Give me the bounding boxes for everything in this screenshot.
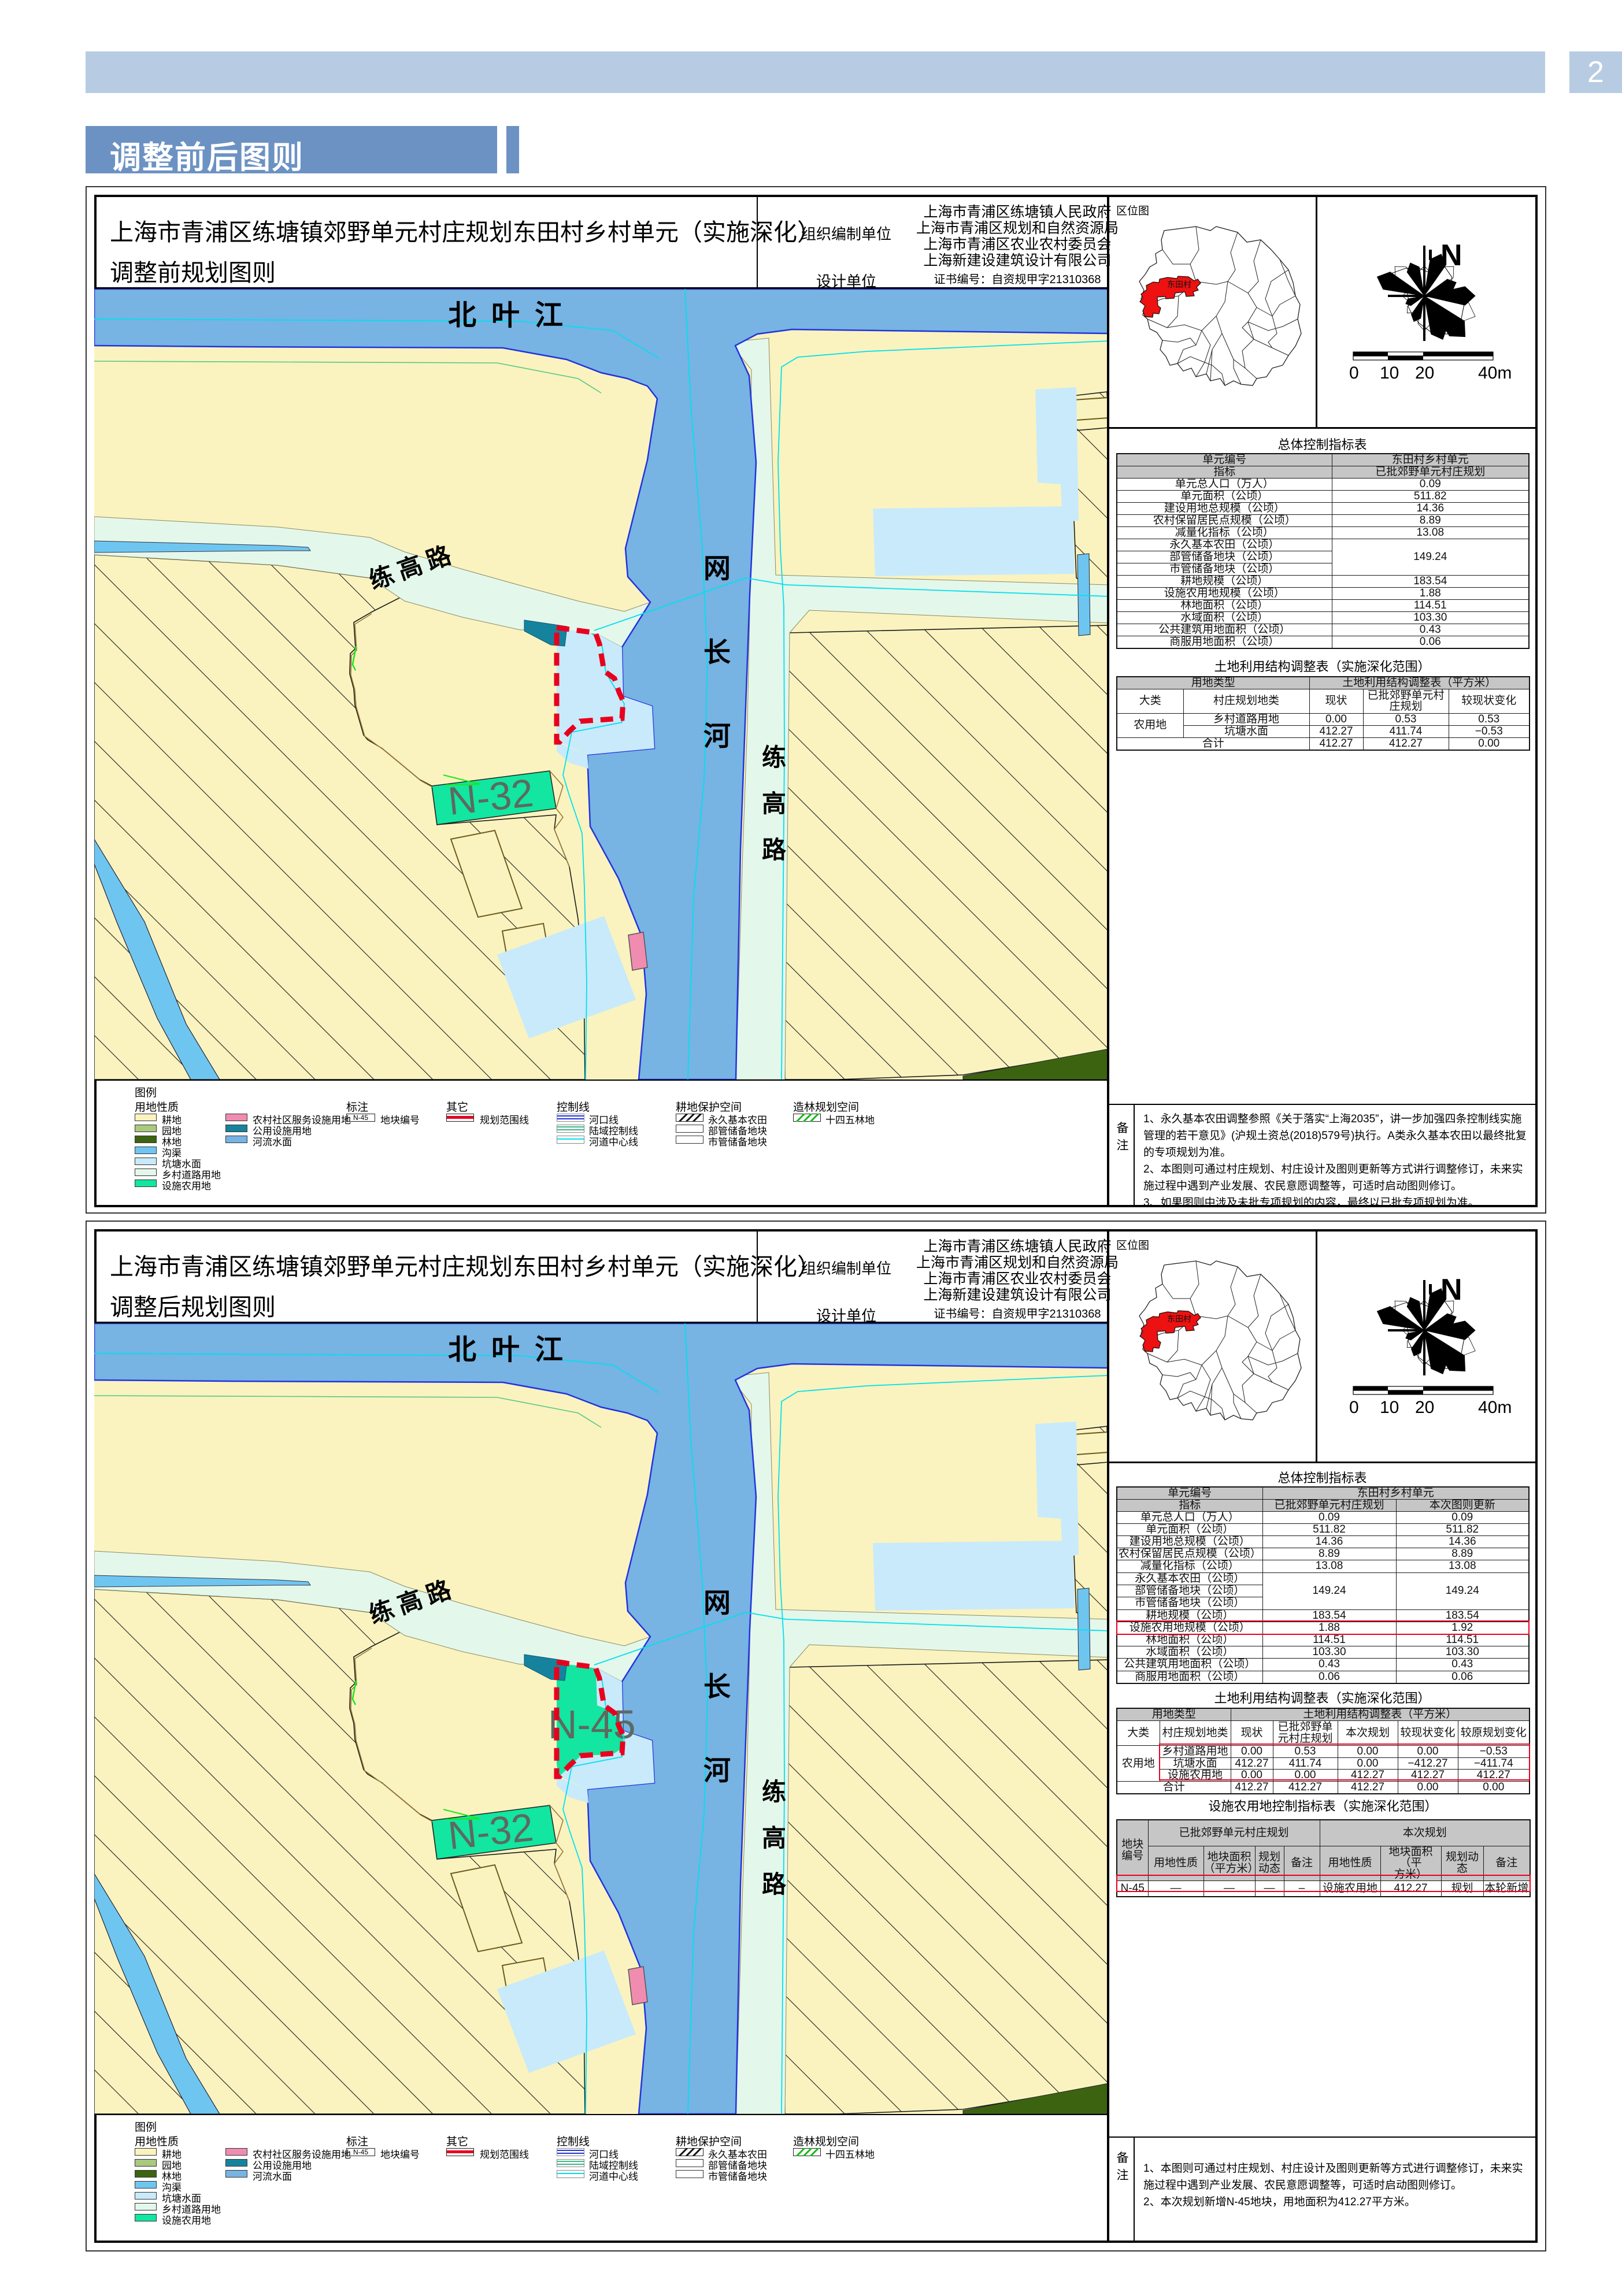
svg-text:北叶江: 北叶江: [448, 1334, 578, 1366]
svg-text:0: 0: [1349, 363, 1359, 383]
svg-text:0: 0: [1349, 1398, 1359, 1417]
svg-text:东田村: 东田村: [1167, 1314, 1191, 1323]
svg-text:N: N: [1440, 239, 1462, 272]
svg-text:长: 长: [703, 637, 731, 667]
svg-text:北叶江: 北叶江: [448, 300, 578, 331]
svg-text:高: 高: [762, 1824, 786, 1852]
svg-text:练: 练: [762, 744, 786, 771]
svg-text:20: 20: [1415, 363, 1434, 383]
svg-text:40m: 40m: [1478, 363, 1512, 383]
svg-text:N-45: N-45: [548, 1702, 636, 1747]
svg-text:40m: 40m: [1478, 1398, 1512, 1417]
svg-text:网: 网: [703, 553, 731, 584]
svg-text:河: 河: [703, 721, 731, 751]
svg-text:路: 路: [762, 1871, 787, 1898]
svg-text:网: 网: [703, 1587, 731, 1618]
svg-text:路: 路: [762, 836, 787, 863]
svg-text:练: 练: [762, 1778, 786, 1805]
svg-text:10: 10: [1380, 363, 1399, 383]
svg-text:东田村: 东田村: [1167, 280, 1191, 289]
svg-text:高: 高: [762, 790, 786, 817]
svg-text:20: 20: [1415, 1398, 1434, 1417]
svg-text:10: 10: [1380, 1398, 1399, 1417]
svg-text:长: 长: [703, 1671, 731, 1702]
svg-text:N: N: [1440, 1273, 1462, 1307]
svg-text:河: 河: [703, 1755, 731, 1786]
